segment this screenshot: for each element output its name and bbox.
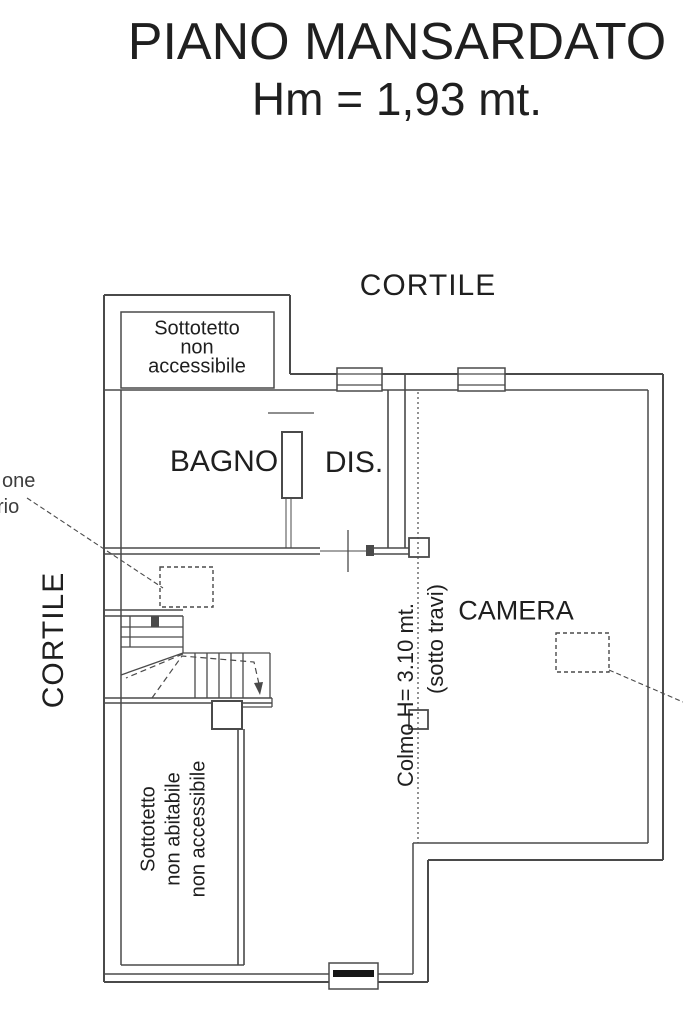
attic-bottom-note: Sottotetto non abitabile non accessibile — [137, 761, 212, 898]
bagno-dis-pillar — [282, 432, 302, 498]
window-icon-top-left — [337, 368, 382, 391]
attic-top-note-line3: accessibile — [97, 358, 297, 377]
dis-label: DIS. — [325, 446, 383, 480]
cortile-label-top: CORTILE — [360, 269, 496, 303]
attic-bottom-note-line2: non abitabile — [162, 761, 187, 898]
attic-top-note: Sottotetto non accessibile — [97, 320, 297, 377]
staircase-icon — [121, 616, 270, 698]
page-title: PIANO MANSARDATO — [112, 12, 682, 72]
bagno-label: BAGNO — [170, 445, 278, 479]
camera-label: CAMERA — [458, 596, 574, 627]
cutoff-label-line2: rio — [0, 496, 19, 519]
leader-line-right — [609, 670, 683, 702]
ridge-height-label: Colmo H= 3.10 mt. — [393, 603, 419, 787]
cutoff-label-line1: one — [2, 470, 35, 493]
stair-pillar — [212, 701, 242, 729]
door-icon — [320, 530, 374, 572]
cortile-label-left: CORTILE — [37, 572, 71, 708]
ridge-subnote-label: (sotto travi) — [423, 584, 449, 694]
attic-bottom-note-line3: non accessibile — [187, 761, 212, 898]
attic-bottom-note-line1: Sottotetto — [137, 761, 162, 898]
stair-arrow-head — [254, 682, 263, 695]
floor-plan-page: PIANO MANSARDATO Hm = 1,93 mt. CORTILE C… — [0, 0, 683, 1024]
page-subtitle: Hm = 1,93 mt. — [112, 72, 682, 126]
window-icon-bottom — [329, 963, 378, 989]
window-icon-top-right — [458, 368, 505, 391]
ridge-post-upper — [409, 538, 429, 557]
floor-plan-drawing — [0, 0, 683, 1024]
